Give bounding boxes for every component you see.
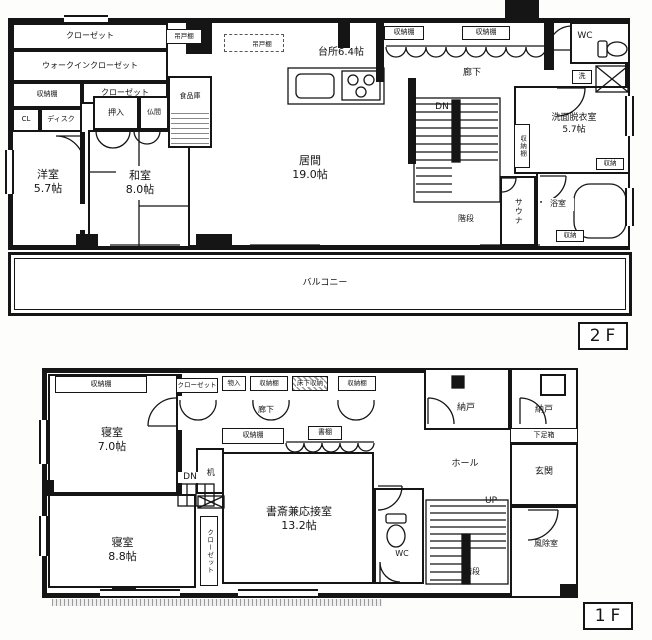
label-up-1f: UP [478, 496, 504, 508]
washing-machine-2f-icon [596, 66, 628, 92]
folding-doors-2f [386, 46, 546, 57]
label-bath-2f: 浴室 [542, 198, 574, 211]
label-desk-1f: 机 [202, 456, 218, 488]
label-kitchen-2f: 台所6.4帖 [296, 44, 386, 60]
label-closet-mid-2f: クローゼット [82, 84, 168, 102]
label-shelf-top1-2f: 収納棚 [384, 26, 424, 40]
label-stairs-2f: 階段 [446, 212, 486, 226]
label-underfloor-1f: 床下収納 [296, 380, 324, 387]
label-closet-small-1f: クローゼット [176, 378, 218, 393]
fusuma-arcs-2f [96, 131, 160, 148]
label-shelf-top2-2f: 収納棚 [462, 26, 510, 40]
label-balcony-2f: バルコニー [280, 276, 370, 292]
label-washroom-2f: 洗面脱衣室 5.7帖 [526, 112, 622, 138]
label-shelf-c1-1f: 収納棚 [250, 376, 288, 391]
label-oshiire-2f: 押入 [93, 104, 139, 122]
floorplan-page: クローゼット ウォークインクローゼット 収納棚 クローゼット CL ディスク 洋… [0, 0, 652, 640]
label-nando1-1f: 納戸 [448, 402, 484, 416]
nando1-pillar-1f [452, 376, 464, 388]
label-butsuma-2f: 仏間 [139, 104, 169, 122]
kitchen-counter-2f [288, 68, 384, 104]
label-nando2-1f: 納戸 [526, 404, 562, 417]
label-storage1-2f: 収納 [596, 158, 624, 170]
stairs-2f-graphic [414, 98, 500, 202]
label-study-1f: 書斎兼応接室 13.2帖 [252, 503, 346, 535]
label-corridor-1f: 廊下 [248, 404, 284, 417]
label-living-room-2f: 居間 19.0帖 [270, 150, 350, 186]
label-corridor-2f: 廊下 [452, 66, 492, 82]
label-desk-2f: ディスク [40, 111, 82, 129]
balcony-sliding-doors-2f [110, 245, 546, 249]
label-shelf-bed7-1f: 収納棚 [55, 376, 147, 393]
label-wc-1f: WC [388, 548, 416, 560]
label-hanging-cupboard1-2f: 吊戸棚 [166, 29, 202, 44]
label-shelf-washroom-2f: 収納棚 [514, 124, 530, 168]
label-shelf-study-1f: 収納棚 [222, 428, 284, 444]
label-dn-1f: DN [178, 472, 202, 483]
label-cl-2f: CL [12, 111, 40, 129]
floor1-badge: 1F [583, 602, 633, 630]
label-walkin-closet-2f: ウォークインクローゼット [12, 56, 168, 76]
label-hanging-cupboard2-2f: 吊戸棚 [240, 38, 284, 50]
label-bedroom7-1f: 寝室 7.0帖 [72, 425, 152, 455]
bookshelf-scallops-1f [286, 442, 374, 452]
label-bedroom88-1f: 寝室 8.8帖 [85, 535, 160, 565]
label-dn-2f: DN [428, 102, 456, 114]
label-fujo-1f: 風除室 [526, 538, 566, 551]
floor2-badge: 2F [578, 322, 628, 350]
label-sauna-2f: サウナ [506, 182, 530, 240]
label-western-room-2f: 洋室 5.7帖 [18, 165, 78, 199]
label-wc-2f: WC [572, 30, 598, 44]
label-storage2-2f: 収納 [556, 230, 584, 242]
label-closet-vertical-1f: クローゼット [200, 516, 218, 586]
label-bookshelf-1f: 書棚 [308, 426, 342, 440]
label-japanese-room-2f: 和室 8.0帖 [116, 166, 164, 200]
underfloor-storage-1f: 床下収納 [292, 376, 328, 391]
label-washer-2f: 洗 [572, 70, 592, 84]
toilet-1f-icon [386, 514, 406, 547]
label-shoe-cabinet-1f: 下足箱 [510, 428, 578, 443]
toilet-2f-icon [598, 41, 627, 57]
label-pantry-2f: 食品庫 [170, 90, 210, 104]
label-stairs-1f: 階段 [452, 566, 492, 579]
label-closet-top-2f: クローゼット [12, 26, 168, 46]
label-genkan-1f: 玄関 [526, 466, 562, 480]
label-shelf-c2-1f: 収納棚 [338, 376, 376, 391]
label-monoire-1f: 物入 [222, 376, 246, 391]
label-shelf-left-2f: 収納棚 [12, 86, 82, 104]
label-hall-1f: ホール [440, 458, 490, 472]
